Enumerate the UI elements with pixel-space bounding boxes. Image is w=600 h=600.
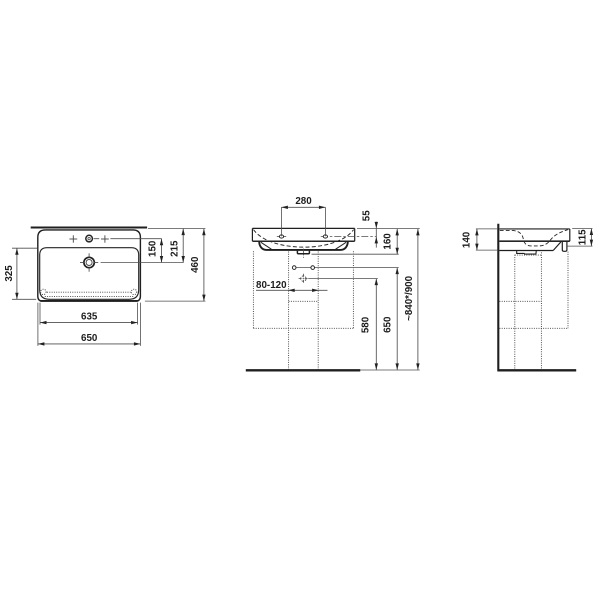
svg-text:325: 325 (4, 265, 15, 282)
svg-text:150: 150 (148, 240, 159, 257)
svg-text:80-120: 80-120 (256, 280, 287, 291)
svg-text:140: 140 (462, 231, 473, 248)
svg-text:280: 280 (295, 196, 312, 207)
svg-text:115: 115 (578, 229, 589, 245)
svg-text:460: 460 (190, 256, 201, 273)
svg-text:650: 650 (81, 333, 98, 344)
svg-text:~840*/900: ~840*/900 (404, 275, 415, 320)
svg-text:55: 55 (361, 210, 372, 221)
svg-text:160: 160 (383, 233, 394, 250)
svg-text:635: 635 (81, 312, 98, 323)
svg-text:580: 580 (361, 316, 372, 333)
svg-text:215: 215 (169, 240, 180, 257)
svg-text:650: 650 (383, 316, 394, 333)
